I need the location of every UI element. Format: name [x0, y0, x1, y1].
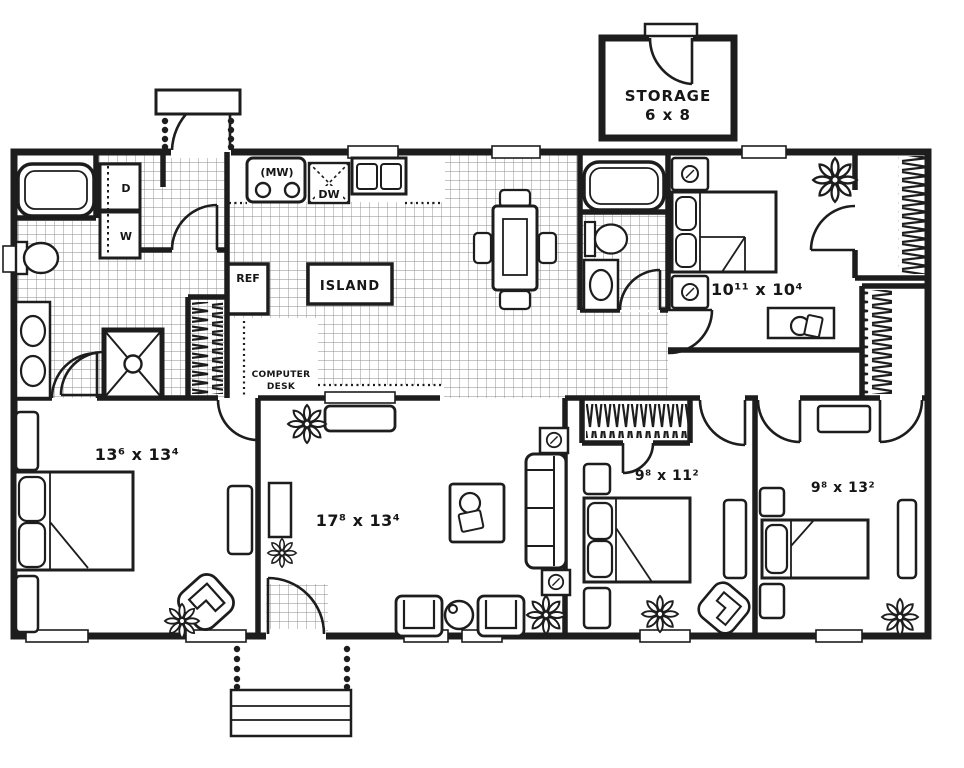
plant-icon: [527, 596, 565, 634]
post-icon: [162, 127, 168, 133]
sofa: [526, 454, 566, 568]
floor-plan-page: STORAGE 6 x 8: [0, 0, 964, 768]
lamp-icon: [549, 575, 563, 589]
nightstand: [760, 488, 784, 516]
armchair: [694, 578, 754, 638]
sink-basin-icon: [357, 164, 377, 189]
bedroom4-window: [816, 630, 862, 642]
console-table: [325, 406, 395, 431]
plant-icon: [288, 405, 326, 443]
pass-through-window: [325, 392, 395, 403]
plant-icon: [882, 599, 918, 635]
plant-icon: [165, 604, 199, 638]
laundry: D W: [100, 164, 140, 258]
storage-size-label: 6 x 8: [645, 106, 691, 124]
post-icon: [162, 144, 168, 150]
bedroom-right-size: 9⁸ x 13²: [811, 480, 875, 496]
dryer-label: D: [121, 182, 130, 195]
post-icon: [162, 118, 168, 124]
pillow: [19, 477, 45, 521]
bedroom4-closet-clothes: [864, 290, 892, 394]
dining-window: [492, 146, 540, 158]
post-icon: [162, 136, 168, 142]
plant-icon: [268, 539, 297, 568]
post-icon: [228, 118, 234, 124]
post-icon: [344, 676, 350, 682]
storage-door-leaf: [645, 24, 697, 36]
lamp-icon: [682, 166, 698, 182]
bedroom3-window: [640, 630, 690, 642]
sink-basin-icon: [381, 164, 401, 189]
master-bedroom-door: [218, 400, 258, 440]
round-table: [445, 601, 473, 629]
nightstand: [16, 412, 38, 470]
burner-icon: [256, 183, 270, 197]
post-icon: [234, 656, 240, 662]
bedroom2-closet-door: [811, 206, 855, 250]
burner-icon: [285, 183, 299, 197]
dining-chair: [474, 233, 491, 263]
dishwasher-label: DW: [318, 188, 339, 201]
side-stoop: [156, 90, 240, 150]
nightstand: [760, 584, 784, 618]
post-icon: [234, 666, 240, 672]
bathroom-window: [3, 246, 16, 272]
storage-label: STORAGE: [625, 87, 712, 105]
bedroom3-closet-clothes: [586, 404, 688, 438]
living-room-size: 17⁸ x 13⁴: [316, 511, 401, 530]
bedroom-middle-size: 9⁸ x 11²: [635, 468, 699, 484]
desk-paper-icon: [804, 315, 823, 338]
bedroom-top-right-size: 10¹¹ x 10⁴: [711, 280, 803, 299]
lamp-icon: [547, 433, 561, 447]
bedroom2-closet-clothes: [898, 156, 926, 274]
pantry-shelves: [192, 302, 223, 394]
post-icon: [344, 666, 350, 672]
master-bedroom-size: 13⁶ x 13⁴: [95, 445, 180, 464]
bedroom4-door: [758, 400, 800, 442]
computer-desk-label: DESK: [267, 382, 296, 392]
dryer: [100, 164, 140, 210]
bedroom-middle: 9⁸ x 11²: [584, 464, 754, 638]
post-icon: [234, 676, 240, 682]
post-icon: [228, 136, 234, 142]
bedroom2-window: [742, 146, 786, 158]
shower-drain: [125, 356, 142, 373]
table-decor-icon: [449, 605, 457, 613]
post-icon: [344, 656, 350, 662]
toilet-bowl: [24, 243, 58, 273]
pillow: [19, 523, 45, 567]
table-decor-icon: [458, 510, 483, 532]
computer-desk-label: COMPUTER: [252, 370, 311, 380]
nightstand: [16, 576, 38, 632]
sink-icon: [21, 316, 45, 346]
dresser: [228, 486, 252, 554]
porch-steps: [231, 690, 351, 736]
post-icon: [344, 646, 350, 652]
nightstand: [584, 464, 610, 494]
pillow: [676, 234, 696, 267]
washer-label: W: [120, 230, 132, 243]
sink-icon: [21, 356, 45, 386]
toilet-bowl: [595, 225, 627, 254]
dresser: [818, 406, 870, 432]
dresser: [898, 500, 916, 578]
master-bedroom: 13⁶ x 13⁴: [15, 412, 252, 638]
pillow: [588, 541, 612, 577]
bedroom3-door: [700, 400, 745, 445]
post-icon: [234, 646, 240, 652]
lamp-icon: [682, 284, 698, 300]
pillow: [676, 197, 696, 230]
nightstand: [584, 588, 610, 628]
storage-building: STORAGE 6 x 8: [602, 24, 734, 138]
bedroom4-closet-door: [880, 400, 922, 442]
microwave-label: (MW): [260, 166, 293, 179]
pillow: [588, 503, 612, 539]
dresser: [724, 500, 746, 578]
plant-icon: [642, 596, 678, 632]
refrigerator-label: REF: [236, 272, 260, 285]
island-label: ISLAND: [320, 279, 380, 294]
floor-plan-svg: STORAGE 6 x 8: [0, 0, 964, 768]
stoop-platform: [156, 90, 240, 114]
plant-icon: [813, 158, 857, 202]
post-icon: [228, 144, 234, 150]
shelf: [269, 483, 291, 537]
front-porch: [231, 646, 351, 736]
dining-table-inlay: [503, 219, 527, 275]
dining-chair: [539, 233, 556, 263]
bedroom2-door: [668, 310, 712, 353]
dining-chair: [500, 190, 530, 207]
kitchen-window: [348, 146, 398, 158]
post-icon: [228, 127, 234, 133]
pillow: [766, 525, 787, 573]
toilet-tank: [585, 222, 595, 256]
master-bedroom-window-2: [186, 630, 246, 642]
sink-icon: [590, 270, 612, 300]
dining-chair: [500, 291, 530, 309]
